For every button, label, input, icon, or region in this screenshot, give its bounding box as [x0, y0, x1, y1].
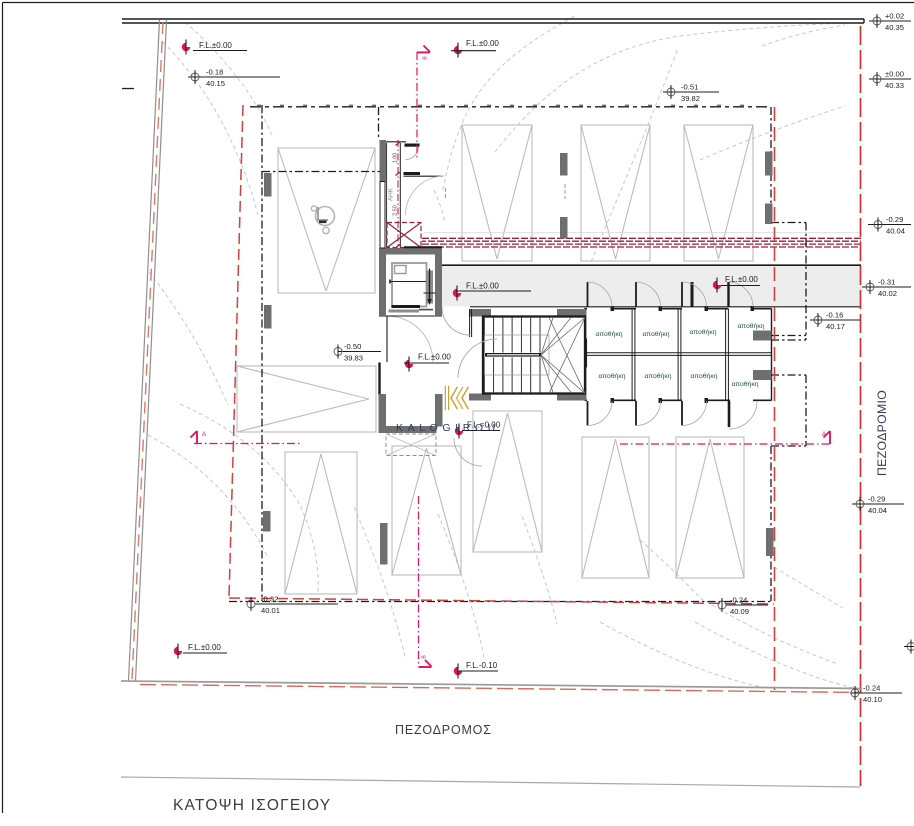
svg-text:40.04: 40.04: [886, 227, 905, 236]
svg-text:αποθήκη: αποθήκη: [731, 381, 758, 388]
svg-text:40.04: 40.04: [868, 506, 887, 515]
svg-text:40.15: 40.15: [206, 79, 225, 88]
svg-text:F.L.±0.00: F.L.±0.00: [725, 275, 758, 284]
svg-text:F.L.±0.00: F.L.±0.00: [199, 41, 232, 50]
svg-text:-0.29: -0.29: [886, 215, 903, 224]
svg-text:αποθήκη: αποθήκη: [642, 331, 669, 338]
svg-text:KALOGIROU: KALOGIROU: [396, 422, 500, 434]
svg-text:AHK: AHK: [388, 187, 395, 201]
svg-text:40.17: 40.17: [826, 322, 845, 331]
svg-text:±0.00: ±0.00: [885, 70, 904, 79]
svg-text:αποθήκη: αποθήκη: [690, 373, 717, 380]
svg-text:40.02: 40.02: [878, 289, 897, 298]
svg-text:40.35: 40.35: [885, 23, 904, 32]
svg-text:2.50: 2.50: [393, 205, 399, 216]
svg-text:αποθήκη: αποθήκη: [689, 329, 716, 336]
svg-text:ΠΕΖΟΔΡΟΜΙΟ: ΠΕΖΟΔΡΟΜΙΟ: [875, 390, 889, 476]
svg-text:40.09: 40.09: [730, 607, 749, 616]
svg-text:F.L.±0.00: F.L.±0.00: [466, 39, 499, 48]
svg-text:αποθήκη: αποθήκη: [644, 373, 671, 380]
svg-text:39.82: 39.82: [681, 94, 700, 103]
svg-text:-0.32: -0.32: [261, 595, 278, 604]
svg-text:-0.31: -0.31: [878, 278, 895, 287]
svg-text:A: A: [202, 432, 206, 438]
svg-text:-0.50: -0.50: [344, 342, 361, 351]
svg-text:40.10: 40.10: [863, 695, 882, 704]
svg-text:-0.24: -0.24: [863, 684, 880, 693]
svg-text:ΚΑΤΟΨΗ ΙΣΟΓΕΙΟΥ: ΚΑΤΟΨΗ ΙΣΟΓΕΙΟΥ: [173, 797, 331, 814]
svg-text:-0.51: -0.51: [681, 83, 698, 92]
svg-text:-0.29: -0.29: [868, 495, 885, 504]
svg-text:A: A: [822, 432, 826, 438]
svg-text:F.L.-0.10: F.L.-0.10: [466, 661, 498, 670]
svg-text:ΠΕΖΟΔΡΟΜΟΣ: ΠΕΖΟΔΡΟΜΟΣ: [395, 723, 492, 737]
svg-text:39.83: 39.83: [344, 354, 363, 363]
svg-text:F.L.±0.00: F.L.±0.00: [188, 643, 221, 652]
svg-text:F.L.±0.00: F.L.±0.00: [466, 282, 499, 291]
svg-text:40.33: 40.33: [885, 81, 904, 90]
svg-text:F.L.±0.00: F.L.±0.00: [418, 353, 451, 362]
svg-text:-0.18: -0.18: [206, 68, 223, 77]
svg-text:αποθήκη: αποθήκη: [737, 323, 764, 330]
svg-text:-0.16: -0.16: [826, 311, 843, 320]
svg-text:αποθήκη: αποθήκη: [595, 331, 622, 338]
svg-text:-0.24: -0.24: [730, 596, 747, 605]
svg-text:1.00: 1.00: [393, 153, 399, 164]
svg-text:40.01: 40.01: [261, 606, 280, 615]
svg-text:+0.02: +0.02: [885, 12, 904, 21]
svg-text:αποθήκη: αποθήκη: [598, 373, 625, 380]
